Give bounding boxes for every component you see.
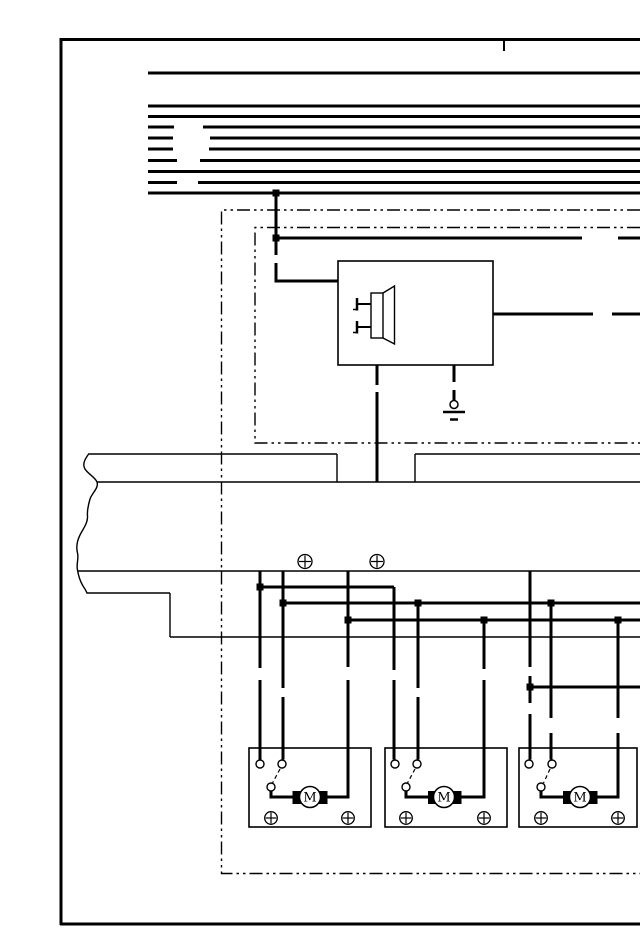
- component-boundary-outer: [222, 210, 640, 874]
- junction-603-b: [415, 600, 422, 607]
- motor1-label: M: [303, 791, 316, 806]
- switch-pivot-3: [537, 783, 545, 791]
- wiring-diagram-page: MMM: [0, 0, 640, 950]
- junction-603-a: [280, 600, 287, 607]
- terminal-3b: [548, 760, 556, 768]
- switch1-to-motor-wire: [271, 790, 293, 797]
- motor3-right-wire: [598, 733, 619, 797]
- switch-pivot-1: [267, 783, 275, 791]
- wiring-diagram: MMM: [0, 0, 640, 950]
- harness-torn-edge: [77, 454, 98, 594]
- horn-body: [371, 293, 383, 338]
- switch-throw-2: [408, 769, 416, 783]
- junction-620-a: [345, 617, 352, 624]
- junction-620-b: [481, 617, 488, 624]
- switch-throw-3: [544, 769, 551, 783]
- junction-bus-feed: [273, 190, 280, 197]
- junction-587: [257, 584, 264, 591]
- junction-687: [527, 684, 534, 691]
- motor2-right-wire: [462, 680, 485, 797]
- horn-cone: [383, 286, 395, 344]
- motor2-label: M: [437, 791, 450, 806]
- terminal-2b: [413, 760, 421, 768]
- horn-relay-box: [338, 261, 493, 365]
- switch3-to-motor-wire: [541, 790, 563, 797]
- motor3-label: M: [573, 791, 586, 806]
- ground-ring: [450, 401, 458, 409]
- terminal-2a: [391, 760, 399, 768]
- motor1-right-wire: [328, 680, 349, 797]
- switch-throw-1: [273, 769, 281, 783]
- junction-row1: [273, 235, 280, 242]
- terminal-3a: [525, 760, 533, 768]
- junction-603-c: [548, 600, 555, 607]
- feed-wire-into-horn-box: [276, 263, 338, 281]
- terminal-1b: [278, 760, 286, 768]
- switch-pivot-2: [402, 783, 410, 791]
- component-boundary-inner: [255, 228, 640, 444]
- switch2-to-motor-wire: [406, 790, 428, 797]
- junction-620-c: [615, 617, 622, 624]
- terminal-1a: [256, 760, 264, 768]
